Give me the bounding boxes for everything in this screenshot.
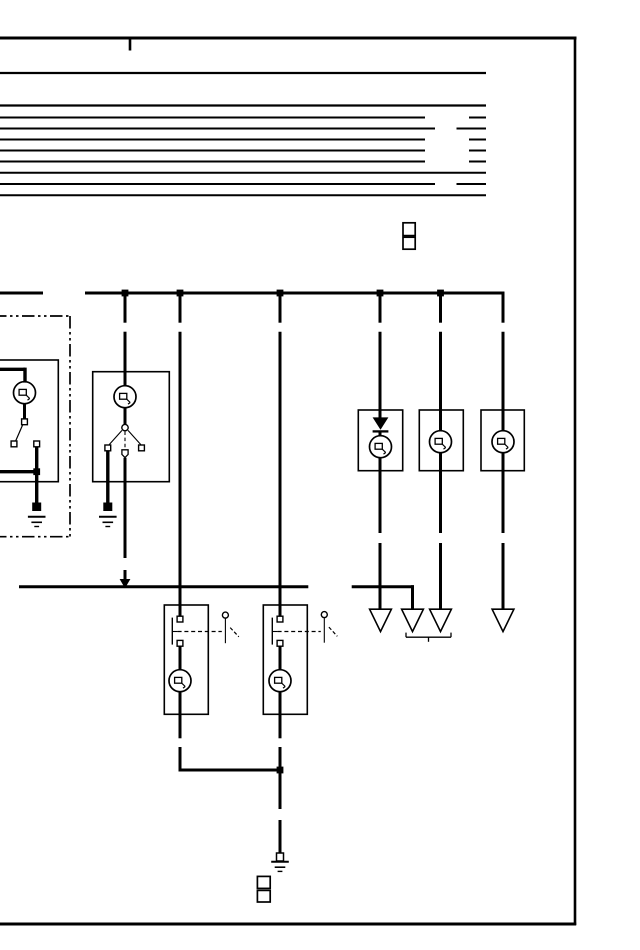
switch-contact <box>222 612 228 618</box>
lamp-symbol-filament <box>444 448 446 450</box>
connector-terminal <box>177 640 183 646</box>
connector-terminal <box>277 616 283 622</box>
switch-lever <box>109 430 122 444</box>
wire-junction <box>33 468 40 475</box>
connector-terminal <box>34 441 40 447</box>
wire-junction <box>437 290 444 297</box>
lamp-symbol-filament <box>175 677 182 683</box>
lamp-symbol-filament <box>442 444 445 447</box>
lamp-symbol-filament <box>275 677 282 683</box>
ground-symbol <box>277 853 284 861</box>
diode-symbol <box>373 417 389 429</box>
unrendered-label-box <box>257 890 270 902</box>
lamp-symbol-filament <box>506 448 508 450</box>
lamp-symbol-filament <box>435 438 442 444</box>
unrendered-label-box <box>403 237 415 249</box>
lamp-symbol-filament <box>183 687 185 689</box>
connector-arrow <box>402 609 424 631</box>
component-box-switch-lamp-B <box>263 605 307 714</box>
ground-symbol <box>103 503 112 512</box>
wire-junction <box>277 767 284 774</box>
lamp-symbol-filament <box>498 438 505 444</box>
lamp-symbol-filament <box>120 393 127 399</box>
connector-arrow <box>430 609 452 631</box>
connector-terminal <box>177 616 183 622</box>
wire-junction <box>177 290 184 297</box>
wiring-diagram-canvas <box>0 0 640 950</box>
lamp-symbol-filament <box>19 389 26 395</box>
lamp-symbol-filament <box>282 683 285 686</box>
lamp-symbol-filament <box>505 444 508 447</box>
lamp-symbol-filament <box>384 453 386 455</box>
lamp-symbol-filament <box>382 449 385 452</box>
component-box-switch-lamp-A <box>164 605 208 714</box>
connector-arrow <box>492 609 514 631</box>
wire-junction <box>377 290 384 297</box>
connector-terminal-pointed <box>122 450 128 458</box>
lamp-symbol-filament <box>26 395 29 398</box>
lamp-symbol-filament <box>28 399 30 401</box>
lamp-symbol-filament <box>182 683 185 686</box>
component-box-lamp-switch-1 <box>0 360 58 482</box>
switch-lever <box>16 425 23 441</box>
unrendered-label-box <box>257 876 270 888</box>
connector-terminal <box>22 419 28 425</box>
switch-lever <box>128 430 141 444</box>
lamp-symbol-filament <box>127 399 130 402</box>
lamp-symbol-filament <box>375 443 382 449</box>
lamp-symbol-filament <box>283 687 285 689</box>
ground-symbol <box>32 503 41 512</box>
scanned-wiring-diagram-page <box>0 0 640 950</box>
connector-terminal <box>105 445 111 451</box>
connector-terminal <box>139 445 145 451</box>
connector-terminal <box>11 441 17 447</box>
lamp-symbol-filament <box>128 403 130 405</box>
switch-contact <box>321 612 327 618</box>
wire-junction <box>122 290 129 297</box>
unrendered-label-box <box>403 223 415 236</box>
connector-terminal <box>277 640 283 646</box>
switch-pivot <box>122 424 128 430</box>
wire-junction <box>277 290 284 297</box>
switch-lever-dashed <box>230 628 239 637</box>
switch-lever-dashed <box>329 627 337 636</box>
connector-arrow <box>370 609 392 631</box>
